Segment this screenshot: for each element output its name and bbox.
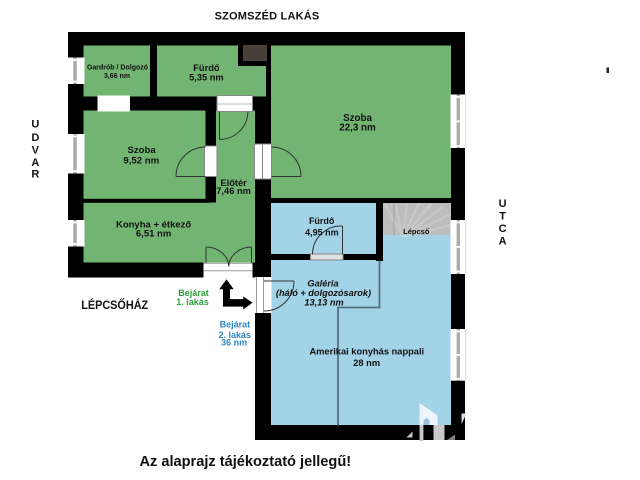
svg-text:3,66 nm: 3,66 nm: [104, 73, 130, 80]
svg-text:9,52 nm: 9,52 nm: [123, 155, 159, 166]
svg-text:Lépcső: Lépcső: [403, 227, 430, 236]
svg-text:C: C: [499, 223, 507, 235]
svg-text:Amerikai konyhás nappali: Amerikai konyhás nappali: [309, 347, 424, 357]
svg-text:5,35 nm: 5,35 nm: [189, 72, 224, 82]
svg-text:6,51 nm: 6,51 nm: [136, 229, 171, 240]
svg-text:U: U: [31, 119, 39, 131]
svg-text:Gardrób / Dolgozó: Gardrób / Dolgozó: [87, 65, 148, 72]
svg-text:Galéria: Galéria: [307, 278, 338, 288]
svg-text:4,95 nm: 4,95 nm: [305, 227, 339, 237]
svg-text:36 nm: 36 nm: [221, 338, 247, 348]
svg-text:Bejárat: Bejárat: [220, 319, 251, 329]
svg-text:SZOMSZÉD LAKÁS: SZOMSZÉD LAKÁS: [215, 10, 320, 23]
svg-text:D: D: [31, 132, 39, 144]
svg-text:T: T: [499, 211, 506, 223]
svg-text:22,3 nm: 22,3 nm: [339, 122, 376, 133]
svg-text:U: U: [499, 198, 507, 210]
svg-text:R: R: [31, 168, 39, 180]
svg-text:1. lakás: 1. lakás: [176, 297, 209, 307]
svg-text:V: V: [32, 144, 40, 156]
svg-text:7,46 nm: 7,46 nm: [216, 186, 251, 196]
svg-text:13,13 nm: 13,13 nm: [304, 298, 343, 308]
svg-text:LÉPCSŐHÁZ: LÉPCSŐHÁZ: [81, 297, 148, 312]
svg-text:A: A: [499, 235, 507, 247]
svg-text:28 nm: 28 nm: [353, 358, 380, 368]
svg-text:Fürdő: Fürdő: [309, 216, 335, 226]
svg-text:Az alaprajz tájékoztató jelleg: Az alaprajz tájékoztató jellegű!: [139, 454, 351, 470]
svg-text:A: A: [31, 157, 39, 169]
